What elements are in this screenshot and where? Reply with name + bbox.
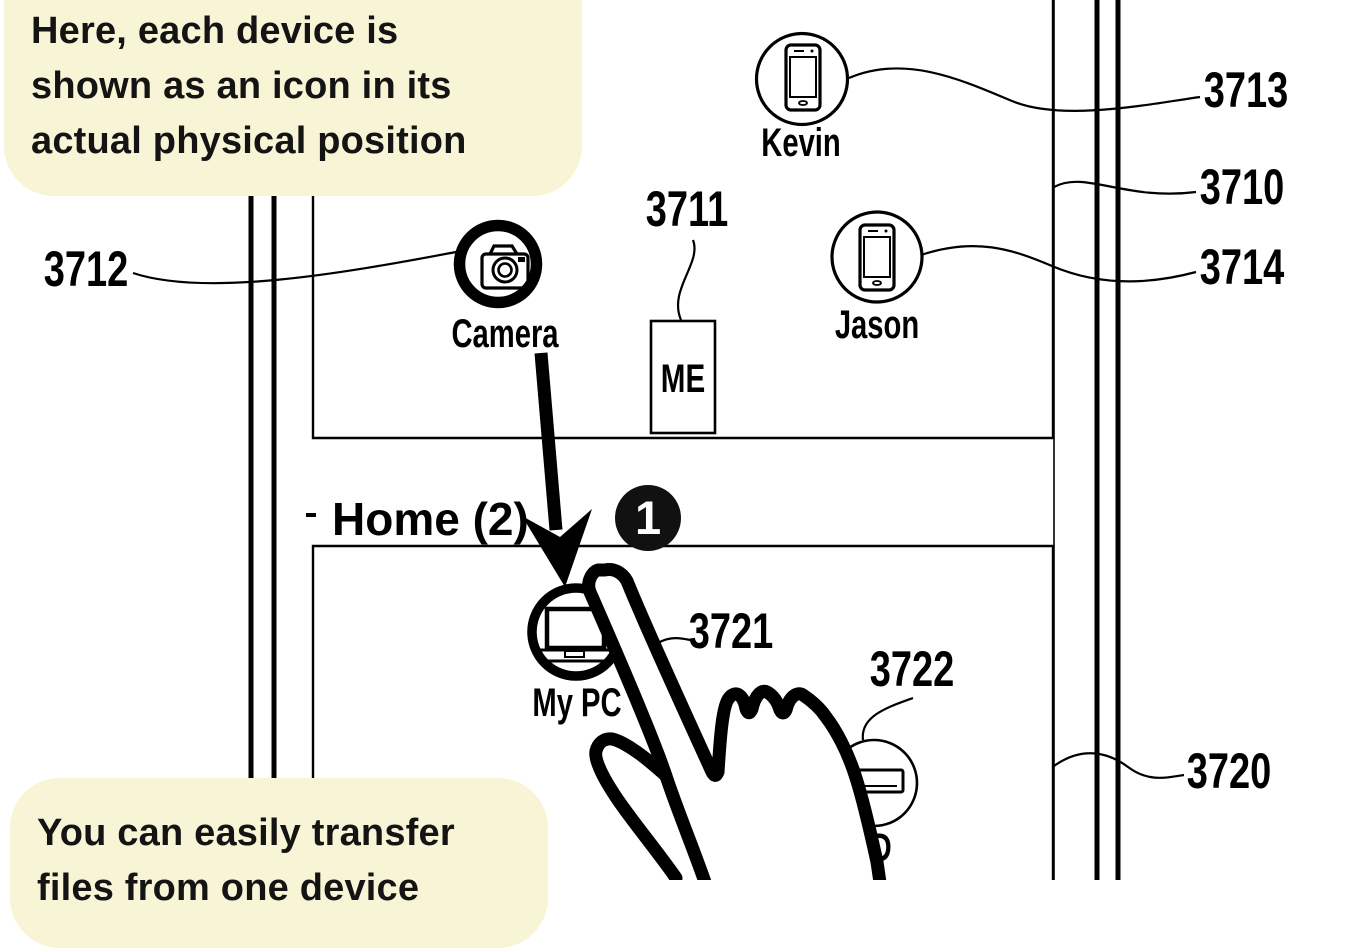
camera-ring xyxy=(460,226,537,303)
callout-bottom-line: files from one device xyxy=(37,861,538,916)
camera-label: Camera xyxy=(451,312,559,357)
ref-3713: 3713 xyxy=(1204,63,1289,118)
callout-bottom-line: You can easily transfer xyxy=(37,806,538,861)
leader-3712 xyxy=(133,252,456,283)
me-label: ME xyxy=(661,357,705,401)
leader-3714 xyxy=(921,246,1196,281)
me-position-box[interactable]: ME xyxy=(651,321,715,433)
ref-3711: 3711 xyxy=(646,182,728,237)
step-badge: 1 xyxy=(615,485,681,551)
leader-3713 xyxy=(849,68,1200,110)
leader-3710 xyxy=(1054,182,1196,194)
ref-3722: 3722 xyxy=(870,642,955,697)
callout-top-line: Here, each device is xyxy=(31,4,572,59)
ref-3721: 3721 xyxy=(689,604,774,659)
room-2-title: Home (2) xyxy=(332,493,529,545)
ref-3720: 3720 xyxy=(1187,744,1272,799)
device-jason[interactable]: Jason xyxy=(832,212,922,347)
ref-3710: 3710 xyxy=(1200,160,1285,215)
kevin-label: Kevin xyxy=(761,121,840,166)
ref-3712: 3712 xyxy=(44,242,129,297)
step-badge-number: 1 xyxy=(635,491,661,544)
drag-arrow-icon xyxy=(522,353,592,587)
drag-arrow-shaft xyxy=(541,353,556,530)
patent-figure-device-map: Home (2) 1 ME Camera Kevin xyxy=(0,0,1346,880)
ref-3714: 3714 xyxy=(1200,240,1285,295)
callout-bottom: You can easily transfer files from one d… xyxy=(10,778,548,948)
mypc-label: My PC xyxy=(532,681,621,726)
device-kevin[interactable]: Kevin xyxy=(757,34,848,166)
camera-icon xyxy=(482,246,528,288)
smartphone-icon xyxy=(860,225,894,290)
smartphone-icon xyxy=(786,45,820,110)
leader-3711 xyxy=(678,240,695,320)
callout-top-line: actual physical position xyxy=(31,114,572,169)
callout-top-line: shown as an icon in its xyxy=(31,59,572,114)
leader-3722 xyxy=(863,698,913,740)
leader-3721 xyxy=(658,638,690,643)
device-camera[interactable]: Camera xyxy=(451,226,559,357)
jason-label: Jason xyxy=(835,303,919,348)
storage-label-fragment: D xyxy=(870,826,891,870)
callout-top: Here, each device is shown as an icon in… xyxy=(4,0,582,196)
